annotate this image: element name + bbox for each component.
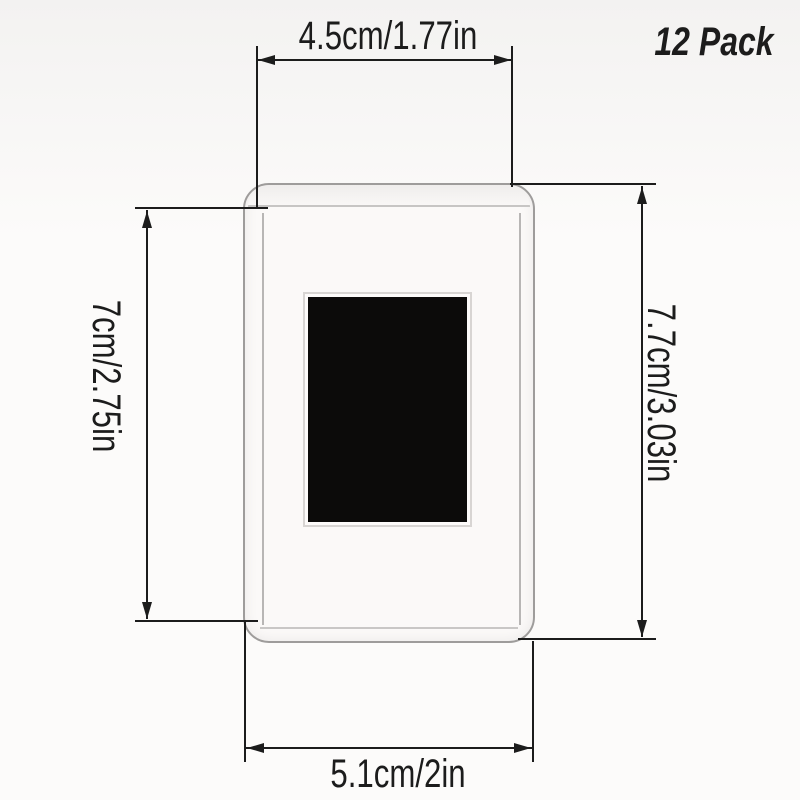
extension-line bbox=[511, 46, 513, 187]
arrow-up-icon bbox=[637, 187, 647, 204]
extension-line bbox=[510, 183, 656, 185]
arrow-right-icon bbox=[514, 743, 531, 753]
extension-line bbox=[532, 641, 534, 762]
frame-inner-lip-left bbox=[262, 213, 264, 625]
arrow-right-icon bbox=[494, 55, 511, 65]
dimension-label-left: 7cm/2.75in bbox=[86, 300, 126, 453]
extension-line bbox=[135, 620, 258, 622]
arrow-down-icon bbox=[142, 602, 152, 619]
dimension-label-top: 4.5cm/1.77in bbox=[299, 16, 478, 56]
arrow-up-icon bbox=[142, 211, 152, 228]
extension-line bbox=[256, 46, 258, 208]
dimension-line bbox=[246, 747, 532, 749]
dimension-line bbox=[257, 59, 512, 61]
dimension-label-bottom: 5.1cm/2in bbox=[330, 754, 465, 794]
extension-line bbox=[135, 207, 268, 209]
arrow-left-icon bbox=[247, 743, 264, 753]
extension-line bbox=[518, 638, 656, 640]
frame-inner-lip-bottom bbox=[260, 627, 518, 629]
arrow-left-icon bbox=[258, 55, 275, 65]
extension-line bbox=[244, 622, 246, 762]
dimension-line bbox=[146, 210, 148, 619]
frame-inner-lip-right bbox=[519, 213, 521, 625]
photo-frame bbox=[243, 183, 535, 643]
arrow-down-icon bbox=[637, 620, 647, 637]
photo-window bbox=[308, 297, 467, 522]
pack-count-label: 12 Pack bbox=[654, 22, 773, 62]
dimension-label-right: 7.7cm/3.03in bbox=[641, 304, 681, 483]
frame-top-slot bbox=[248, 185, 530, 207]
product-dimension-diagram: 12 Pack 4.5cm/1.77in 7cm/2.75in 7.7cm/3.… bbox=[0, 0, 800, 800]
